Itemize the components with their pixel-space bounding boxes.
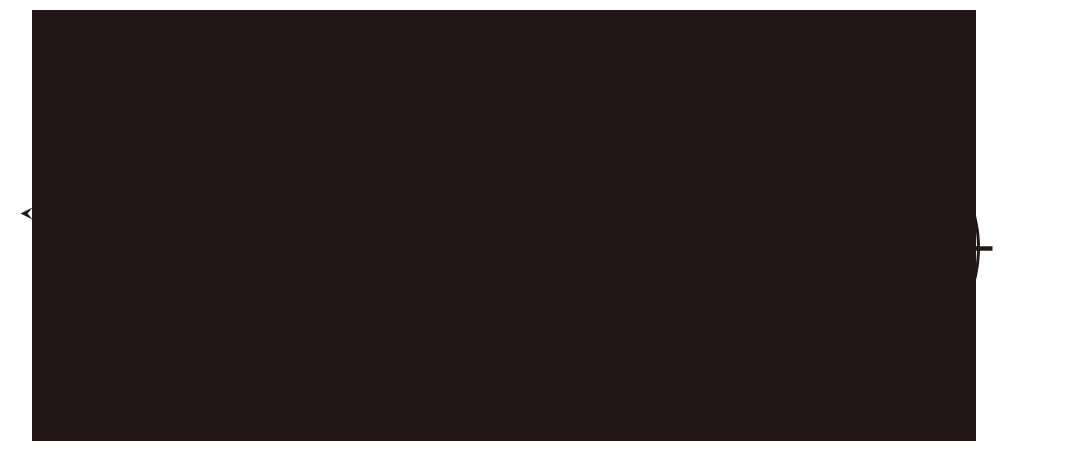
diagram-layer (0, 0, 1068, 462)
left-arrowhead-icon (21, 208, 33, 220)
redaction-overlay (32, 10, 976, 441)
canvas (0, 0, 1068, 462)
